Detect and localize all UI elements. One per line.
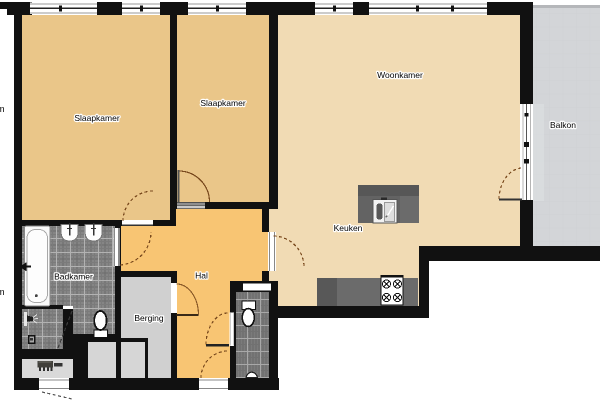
svg-text:Hal: Hal [195,271,208,281]
svg-text:m: m [0,287,5,297]
svg-text:Keuken: Keuken [334,223,363,233]
svg-text:Slaapkamer: Slaapkamer [200,98,246,108]
svg-text:Badkamer: Badkamer [54,272,93,282]
svg-text:m: m [0,104,5,114]
svg-text:Balkon: Balkon [550,120,576,130]
svg-text:Berging: Berging [134,313,164,323]
svg-text:Woonkamer: Woonkamer [377,70,423,80]
svg-text:Slaapkamer: Slaapkamer [74,113,120,123]
